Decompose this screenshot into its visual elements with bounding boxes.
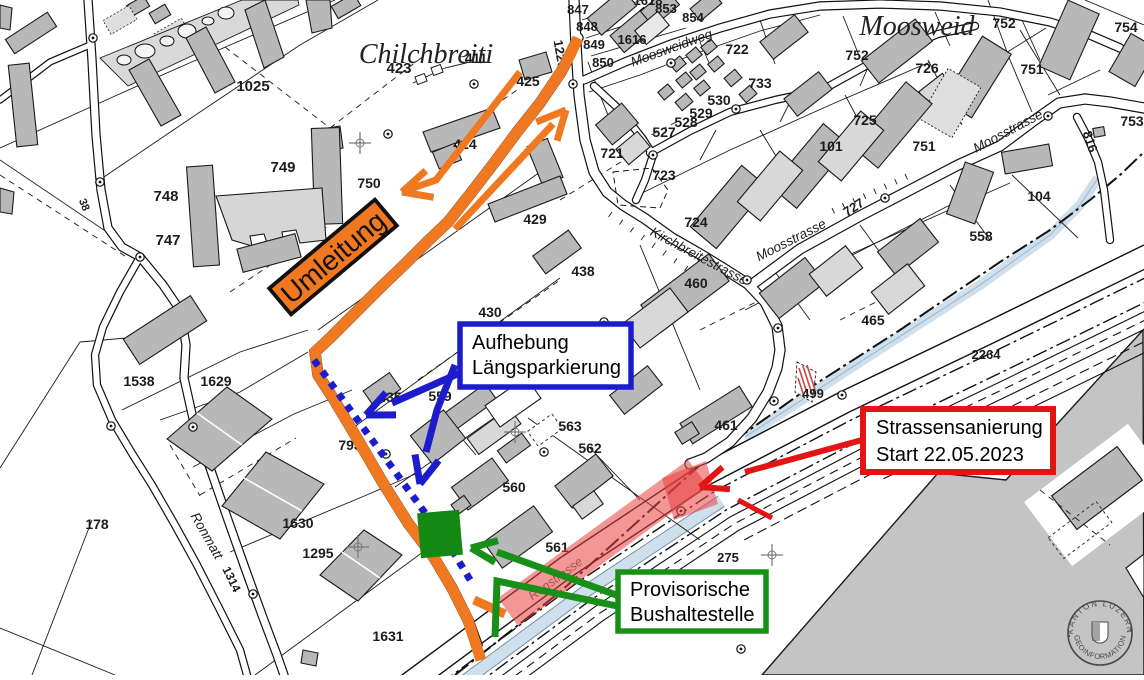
svg-text:722: 722	[725, 41, 749, 57]
svg-text:726: 726	[915, 60, 939, 76]
svg-text:752: 752	[992, 15, 1016, 31]
svg-text:460: 460	[684, 275, 708, 291]
svg-text:465: 465	[861, 312, 885, 328]
svg-text:461: 461	[714, 417, 738, 433]
svg-text:2264: 2264	[972, 347, 1002, 362]
svg-text:528: 528	[674, 114, 698, 130]
svg-text:848: 848	[576, 19, 598, 34]
svg-text:733: 733	[748, 75, 772, 91]
svg-text:850: 850	[592, 55, 614, 70]
svg-text:754: 754	[1114, 19, 1138, 35]
svg-text:1538: 1538	[123, 373, 154, 389]
svg-text:438: 438	[571, 263, 595, 279]
svg-text:101: 101	[819, 138, 843, 154]
svg-text:1618: 1618	[634, 0, 663, 8]
svg-text:499: 499	[802, 386, 824, 401]
svg-text:558: 558	[969, 228, 993, 244]
svg-text:748: 748	[153, 188, 178, 205]
svg-text:Start 22.05.2023: Start 22.05.2023	[876, 444, 1024, 466]
svg-text:751: 751	[912, 138, 936, 154]
svg-text:721: 721	[600, 145, 624, 161]
svg-text:854: 854	[682, 10, 704, 25]
svg-text:Längsparkierung: Längsparkierung	[472, 357, 621, 379]
svg-text:430: 430	[478, 304, 502, 320]
svg-text:Chilchbreiti: Chilchbreiti	[359, 39, 493, 70]
svg-text:562: 562	[578, 440, 602, 456]
svg-text:849: 849	[583, 37, 605, 52]
svg-text:747: 747	[155, 232, 180, 249]
svg-text:527: 527	[652, 124, 676, 140]
svg-text:750: 750	[357, 175, 381, 191]
svg-text:1025: 1025	[236, 78, 269, 95]
svg-text:1616: 1616	[618, 32, 647, 47]
svg-text:749: 749	[270, 159, 295, 176]
svg-text:Strassensanierung: Strassensanierung	[876, 417, 1043, 439]
svg-text:560: 560	[502, 479, 526, 495]
svg-text:178: 178	[85, 516, 109, 532]
svg-text:724: 724	[684, 214, 708, 230]
svg-text:1295: 1295	[302, 545, 333, 561]
svg-text:723: 723	[652, 167, 676, 183]
svg-text:753: 753	[1120, 113, 1144, 129]
svg-text:Moosweid: Moosweid	[858, 11, 975, 42]
svg-text:847: 847	[567, 2, 589, 17]
svg-text:104: 104	[1027, 188, 1051, 204]
svg-text:1630: 1630	[282, 515, 313, 531]
svg-text:752: 752	[845, 47, 869, 63]
svg-text:1631: 1631	[372, 628, 403, 644]
svg-text:Bushaltestelle: Bushaltestelle	[630, 604, 755, 626]
svg-text:751: 751	[1020, 61, 1044, 77]
svg-text:Provisorische: Provisorische	[630, 579, 750, 601]
svg-text:429: 429	[523, 211, 547, 227]
svg-text:275: 275	[717, 550, 739, 565]
svg-text:563: 563	[558, 418, 582, 434]
svg-text:725: 725	[853, 112, 877, 128]
svg-text:1629: 1629	[200, 373, 231, 389]
svg-text:Aufhebung: Aufhebung	[472, 332, 569, 354]
